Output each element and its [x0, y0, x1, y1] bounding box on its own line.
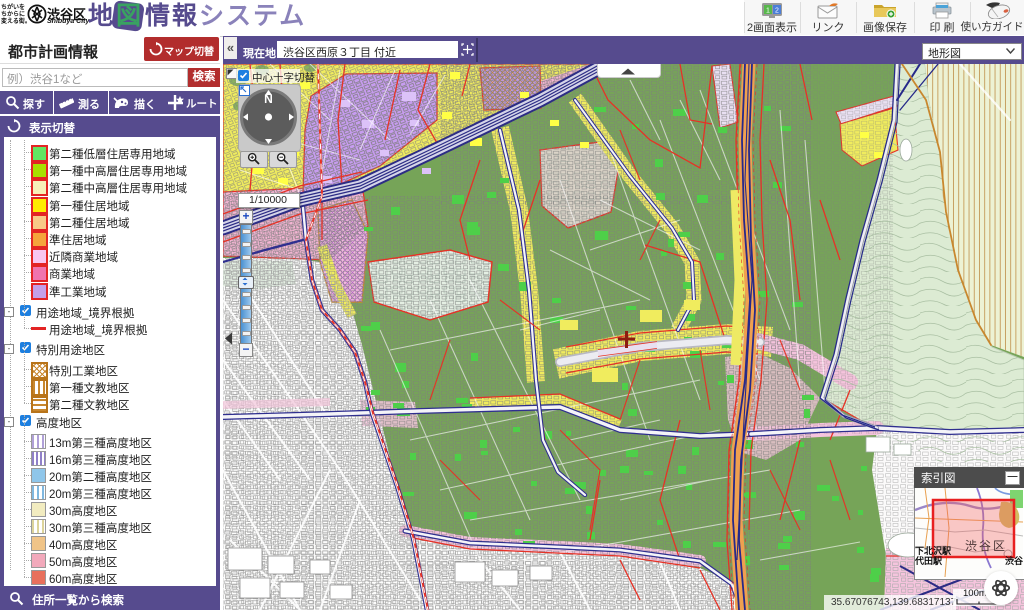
svg-text:1: 1	[766, 8, 770, 15]
svg-text:渋谷区: 渋谷区	[965, 539, 1007, 553]
svg-text:代田駅: 代田駅	[915, 555, 943, 566]
svg-text:渋谷: 渋谷	[1005, 555, 1023, 566]
svg-text:下北沢駅: 下北沢駅	[915, 545, 952, 556]
svg-text:2: 2	[775, 8, 779, 15]
